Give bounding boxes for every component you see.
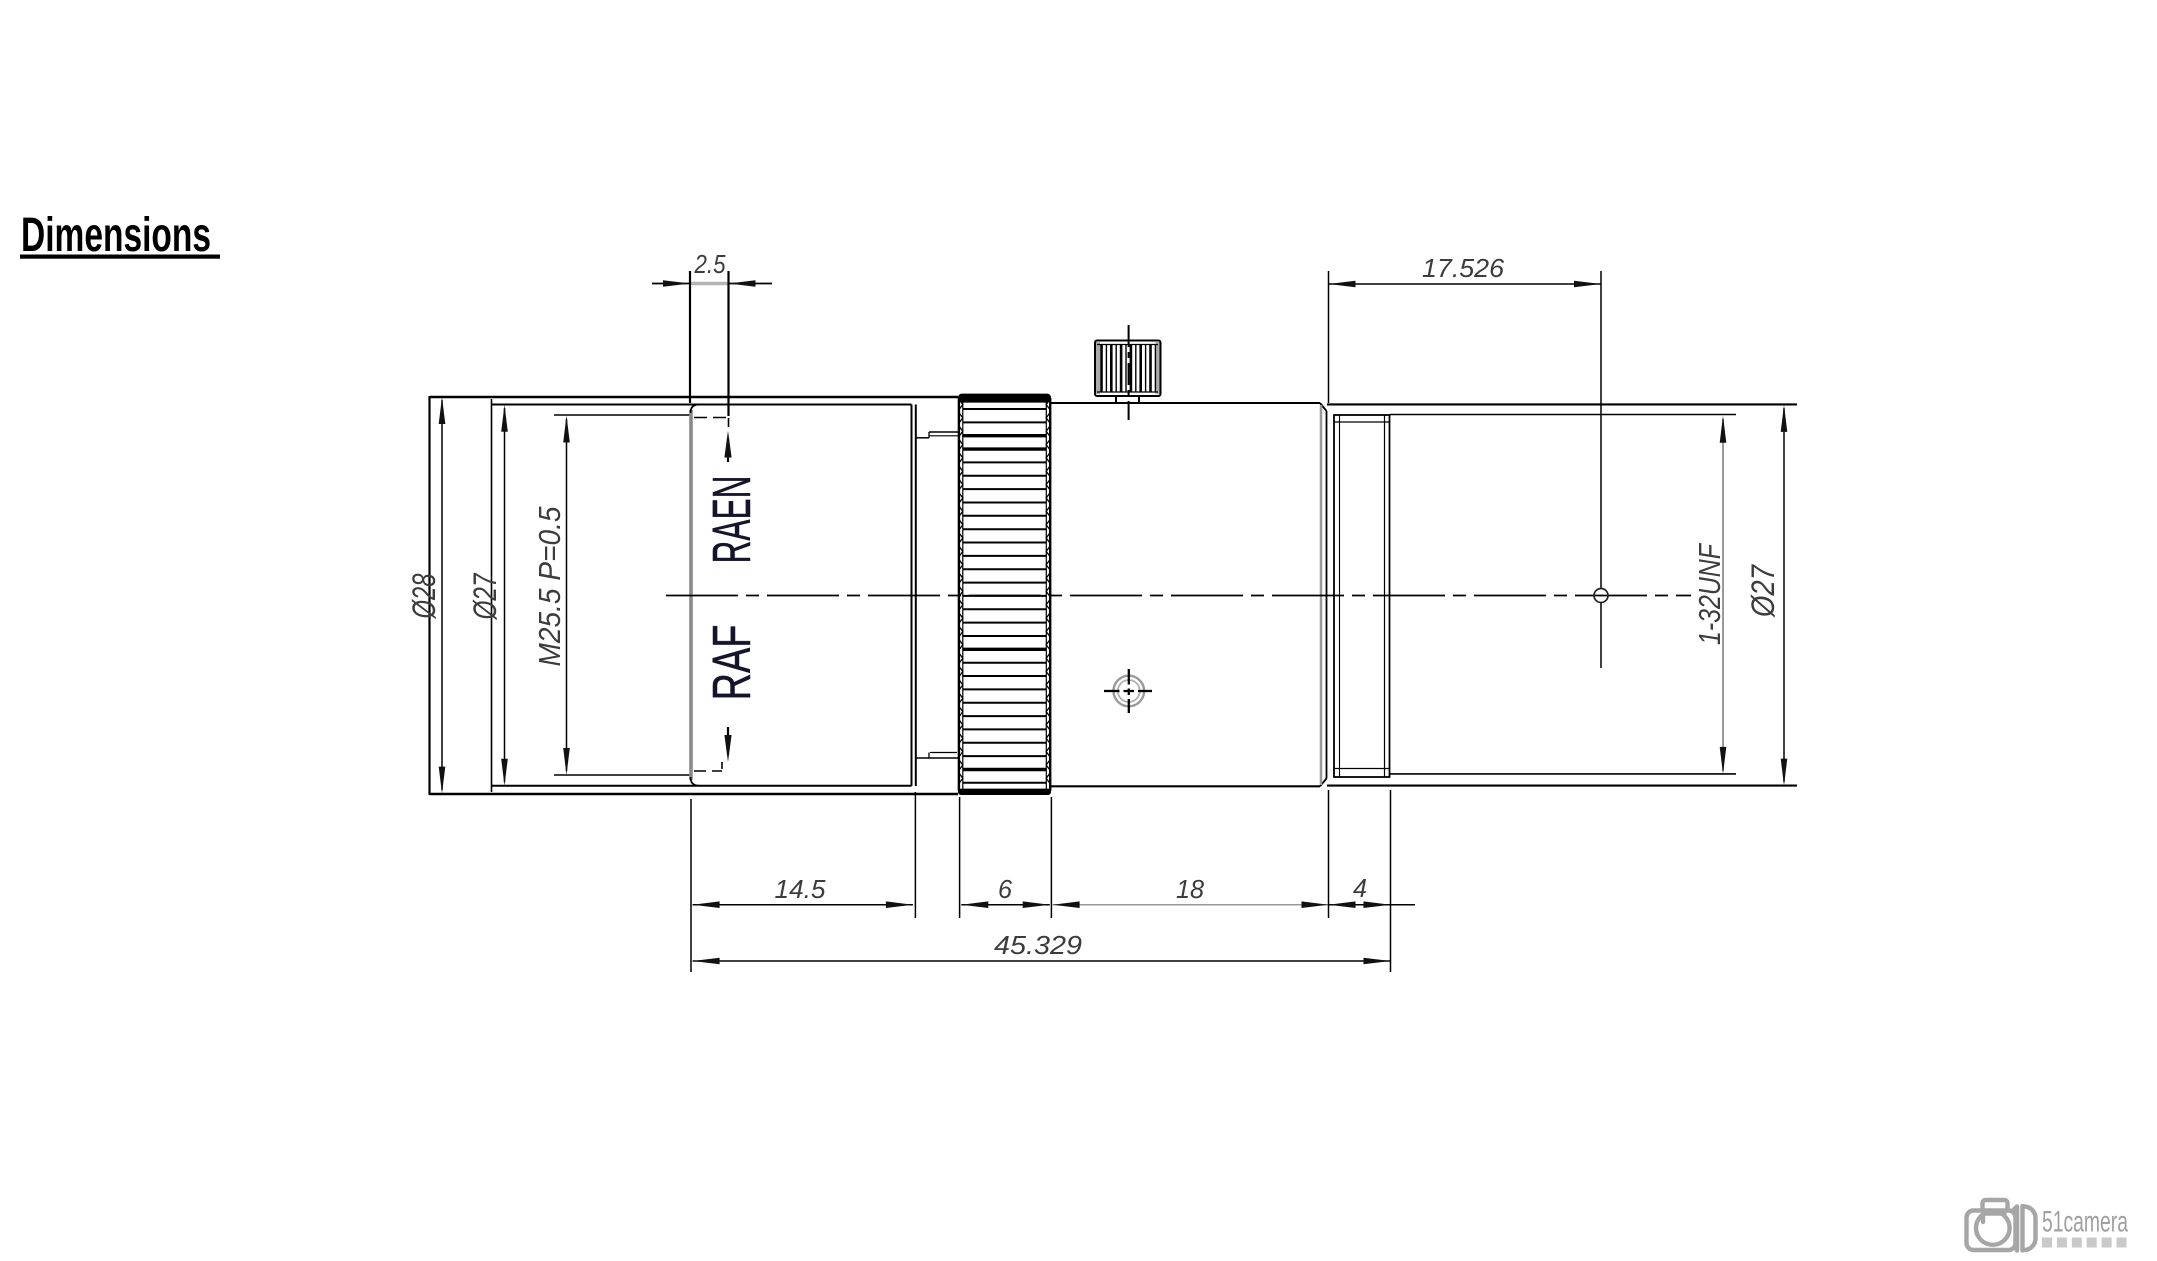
svg-text:6: 6 bbox=[998, 874, 1013, 904]
svg-text:45.329: 45.329 bbox=[994, 930, 1082, 960]
svg-text:14.5: 14.5 bbox=[775, 874, 827, 904]
svg-text:RAEN: RAEN bbox=[702, 476, 762, 564]
svg-text:4: 4 bbox=[1353, 873, 1367, 903]
svg-text:RAF: RAF bbox=[702, 625, 762, 701]
svg-text:1-32UNF: 1-32UNF bbox=[1692, 542, 1727, 645]
svg-text:Dimensions: Dimensions bbox=[21, 209, 211, 262]
svg-text:Ø28: Ø28 bbox=[406, 573, 442, 619]
svg-text:2.5: 2.5 bbox=[694, 249, 726, 279]
svg-text:M25.5 P=0.5: M25.5 P=0.5 bbox=[532, 506, 567, 667]
svg-text:18: 18 bbox=[1176, 874, 1205, 904]
svg-text:Ø27: Ø27 bbox=[1745, 564, 1781, 618]
svg-text:Ø27: Ø27 bbox=[467, 573, 503, 621]
svg-text:51camera: 51camera bbox=[2042, 1206, 2128, 1239]
svg-text:17.526: 17.526 bbox=[1422, 253, 1505, 283]
